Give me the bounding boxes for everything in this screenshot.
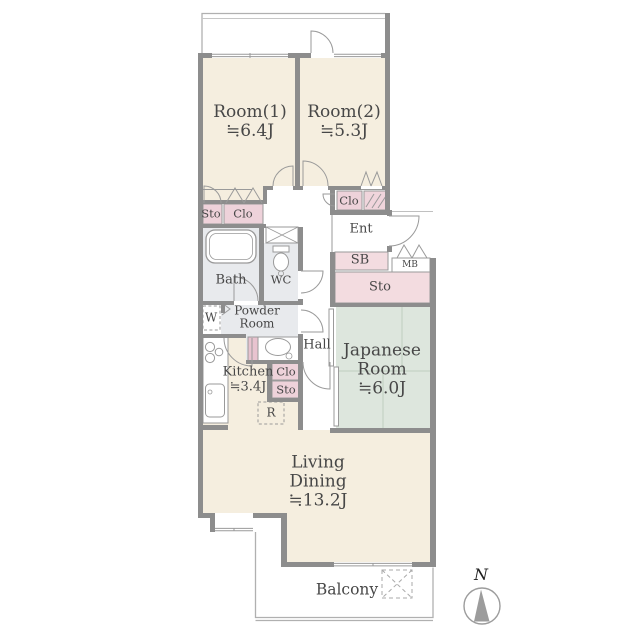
room2-label: Room(2) ≒5.3J	[307, 103, 380, 141]
wc-label: WC	[271, 274, 292, 287]
kitchen-size: ≒3.4J	[223, 380, 274, 395]
floor-plan-drawing	[0, 0, 640, 640]
entrance-label: Ent	[349, 223, 372, 238]
hall-label: Hall	[303, 339, 330, 354]
living-dining-label: Living Dining ≒13.2J	[289, 453, 348, 510]
japanese-room-label: Japanese Room ≒6.0J	[343, 341, 421, 398]
meter-box-label: MB	[402, 260, 418, 270]
sto-entrance-label: Sto	[369, 281, 391, 296]
room1-size: ≒6.4J	[213, 122, 286, 141]
room2-name: Room(2)	[307, 103, 380, 122]
room1-label: Room(1) ≒6.4J	[213, 103, 286, 141]
bath-label: Bath	[216, 274, 247, 289]
shoe-box-label: SB	[351, 254, 369, 269]
clo-room1-label: Clo	[233, 208, 252, 221]
refrigerator-label: R	[266, 406, 275, 419]
room1-name: Room(1)	[213, 103, 286, 122]
washer-label: W	[205, 311, 217, 324]
living-dining-size: ≒13.2J	[289, 492, 348, 511]
north-label: N	[474, 566, 488, 584]
kitchen-label: Kitchen ≒3.4J	[223, 365, 274, 394]
japanese-room-size: ≒6.0J	[343, 380, 421, 399]
sto-kitchen-label: Sto	[276, 384, 295, 397]
powder-room-label: Powder Room	[234, 305, 280, 332]
emergency-hatch	[382, 570, 412, 598]
room2-size: ≒5.3J	[307, 122, 380, 141]
balcony-label: Balcony	[316, 581, 378, 598]
compass-needle	[474, 590, 490, 622]
clo-room2-label: Clo	[339, 195, 358, 208]
compass	[464, 588, 500, 624]
clo-kitchen-label: Clo	[276, 366, 295, 379]
kitchen-name: Kitchen	[223, 365, 274, 380]
floor-plan: Room(1) ≒6.4J Room(2) ≒5.3J Sto Clo Bath…	[0, 0, 640, 640]
sto-room1-label: Sto	[201, 208, 220, 221]
